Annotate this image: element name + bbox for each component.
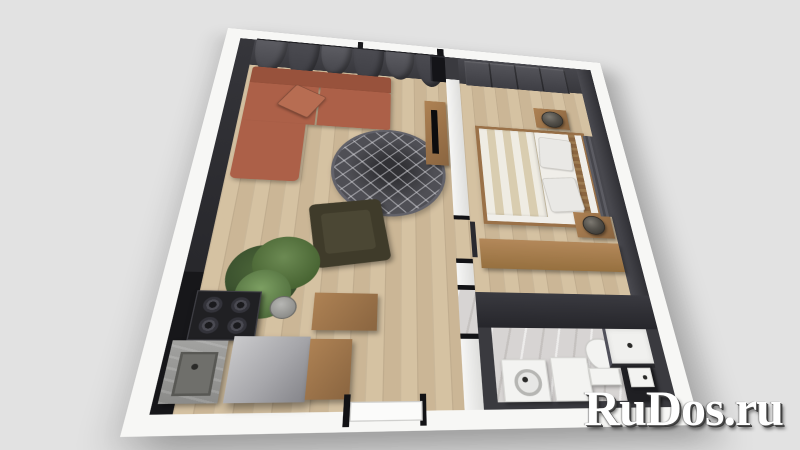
tall-cabinet	[305, 339, 353, 400]
sofa-chaise	[229, 120, 306, 181]
shower-drain	[627, 343, 633, 348]
pillow	[538, 137, 573, 172]
apartment-floorplan	[120, 28, 700, 437]
armchair-cushion	[321, 209, 377, 254]
kitchen-sink	[171, 352, 219, 396]
door-jamb	[460, 334, 478, 339]
plant-pot	[268, 296, 298, 319]
gas-stove	[186, 290, 262, 341]
stove-burner	[197, 317, 220, 334]
watermark: RuDos.ru	[584, 383, 800, 433]
entrance-door	[349, 401, 423, 422]
window-frame-mark	[358, 42, 364, 49]
screenshot-canvas: RuDos.ru	[0, 0, 800, 450]
washing-machine	[501, 359, 552, 402]
window-frame	[430, 55, 446, 82]
washer-door	[513, 369, 544, 396]
door-jamb	[454, 215, 470, 220]
stove-burner	[230, 297, 252, 313]
stove-burner	[226, 317, 248, 334]
shower-tray	[602, 329, 655, 368]
refrigerator	[223, 336, 311, 403]
window-frame-mark	[437, 49, 444, 56]
washer-door-center	[522, 377, 528, 383]
door-jamb	[458, 285, 475, 290]
bedroom-bathroom-wall	[475, 292, 658, 329]
door-jamb	[456, 258, 473, 263]
sink-drain	[642, 375, 647, 379]
bathroom-doorway	[458, 290, 478, 334]
kitchen-cabinet	[311, 293, 377, 331]
curtain-panel	[385, 51, 415, 81]
dresser	[479, 238, 625, 272]
stove-burner	[201, 297, 223, 313]
